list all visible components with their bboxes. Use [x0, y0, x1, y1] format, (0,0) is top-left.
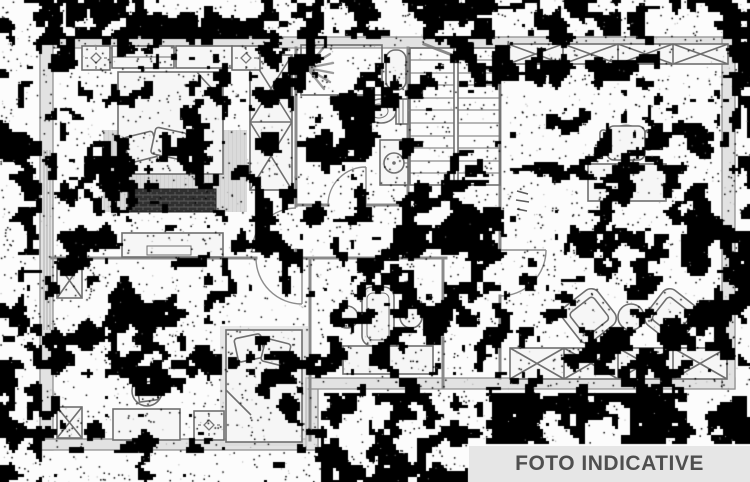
scan-noise-overlay: [0, 0, 750, 482]
photo-indicative-banner: FOTO INDICATIVE: [469, 446, 750, 482]
floorplan-photo: FOTO INDICATIVE: [0, 0, 750, 482]
banner-label: FOTO INDICATIVE: [515, 452, 704, 476]
